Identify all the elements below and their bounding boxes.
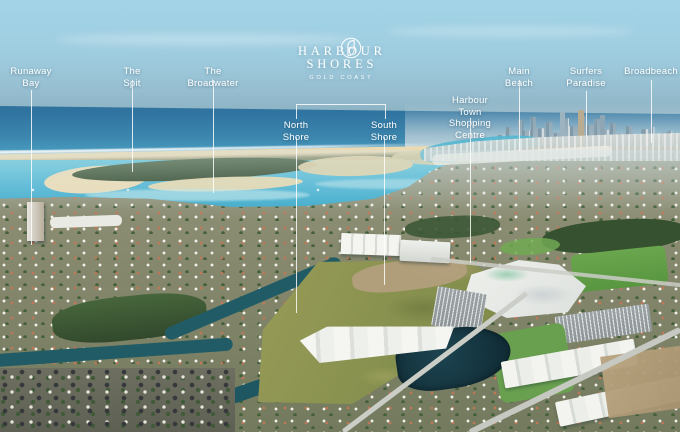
callout-broadbeach-line <box>651 80 652 143</box>
callout-the-spit-label: The Spit <box>123 66 140 89</box>
callout-main-beach-label: Main Beach <box>505 66 533 89</box>
distance-haze <box>0 150 680 220</box>
callout-south-shore-line <box>384 137 385 285</box>
waterfront-homes <box>0 368 235 432</box>
callout-broadbeach-label: Broadbeach <box>624 66 678 78</box>
brand-name-line2: SHORES <box>240 58 444 71</box>
apartment-buildings <box>341 233 402 256</box>
callout-the-broadwater-label: The Broadwater <box>187 66 238 89</box>
callout-the-broadwater-line <box>213 80 214 193</box>
callout-surfers-paradise-line <box>586 91 587 136</box>
callout-harbour-town-shopping-centre-label: Harbour Town Shopping Centre <box>449 95 491 141</box>
aerial-hero-image: HARBOUR SHORES GOLD COAST Runaway BayThe… <box>0 0 680 432</box>
callout-runaway-bay-line <box>31 90 32 245</box>
callout-surfers-paradise-label: Surfers Paradise <box>566 66 606 89</box>
dirt-field <box>600 344 680 419</box>
callout-the-spit-line <box>132 80 133 172</box>
callout-runaway-bay-label: Runaway Bay <box>10 66 51 89</box>
callout-north-shore-label: North Shore <box>283 120 310 143</box>
callout-north-shore-line <box>296 137 297 313</box>
brand-logo: HARBOUR SHORES GOLD COAST <box>240 27 440 81</box>
callout-south-shore-label: South Shore <box>371 120 398 143</box>
brand-tagline: GOLD COAST <box>240 75 443 81</box>
callout-main-beach-line <box>519 80 520 151</box>
north-south-bracket-line <box>296 104 386 119</box>
